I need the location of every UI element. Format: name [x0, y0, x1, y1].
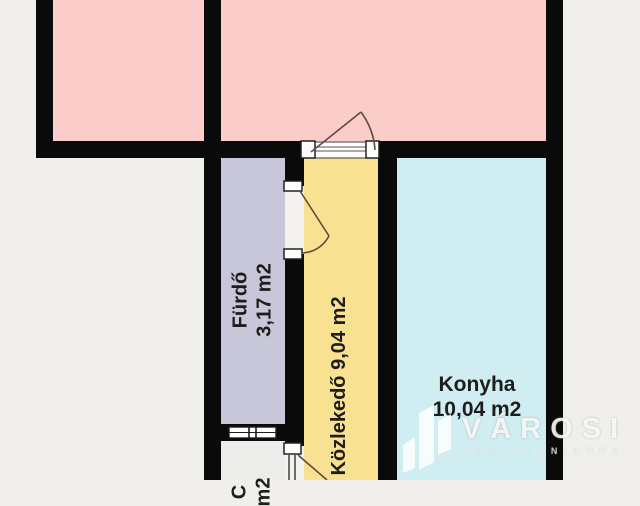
- door-swing-wc-icon: [284, 443, 327, 480]
- varosi-logo-icon: [401, 404, 463, 474]
- room-label-wc-partial: C m2: [228, 478, 275, 506]
- door-swing-top-icon: [301, 112, 379, 158]
- wc-name-partial: C: [228, 478, 252, 506]
- wc-area-partial: m2: [252, 478, 276, 506]
- kozlekedo-area: 9,04 m2: [328, 297, 350, 370]
- watermark-brand: VÁROSI: [462, 413, 627, 446]
- konyha-name: Konyha: [433, 373, 522, 398]
- room-label-kozlekedo: Közlekedő 9,04 m2: [328, 297, 352, 476]
- watermark-subtitle: INGATLANIRODA: [466, 446, 625, 456]
- furdo-name: Fürdő: [229, 263, 253, 336]
- door-window-symbols-layer: [0, 0, 640, 480]
- room-label-furdo: Fürdő 3,17 m2: [229, 263, 276, 336]
- furdo-area: 3,17 m2: [253, 263, 277, 336]
- window-furdo-wc-icon: [229, 427, 276, 438]
- kozlekedo-name: Közlekedő: [328, 375, 350, 475]
- door-swing-furdo-icon: [284, 181, 329, 259]
